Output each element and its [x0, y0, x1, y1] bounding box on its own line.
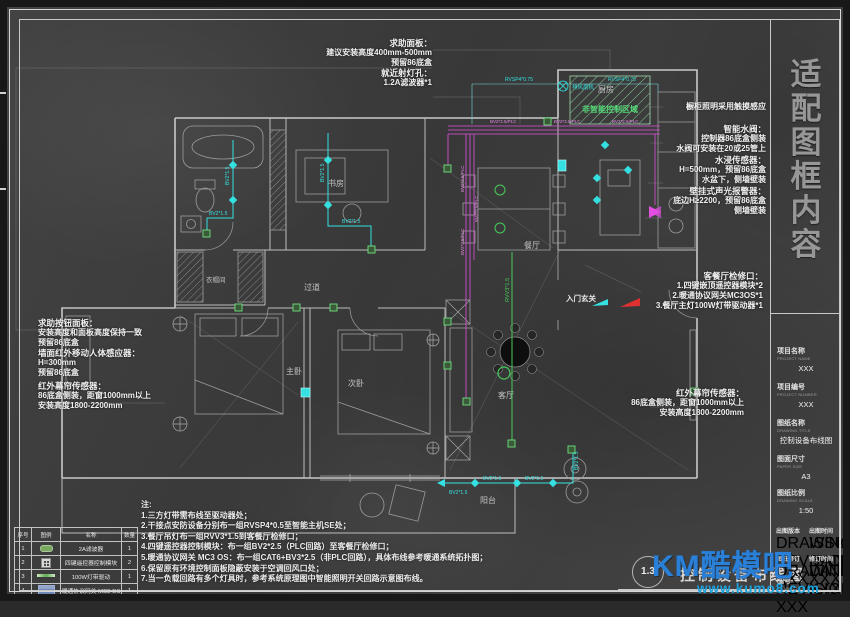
callout-title: 红外幕帘传感器： — [38, 381, 203, 391]
callout-line: 86底盒侧装，距窗1000mm以上 — [574, 398, 744, 408]
legend-no: 4 — [15, 584, 32, 598]
legend-header-row: 序号 图例 名称 数量 — [15, 528, 138, 542]
tb-sublabel: DRAWING NO. — [777, 586, 835, 591]
legend-qty: 1 — [122, 570, 138, 584]
callout-line: 水盆下，侧墙壁装 — [606, 175, 766, 185]
notes-block: 注: 1.三方灯带需布线至驱动器处； 2.干接点安防设备分别布一组RVSP4*0… — [141, 500, 487, 585]
callout-line: 预留86底盒 — [38, 368, 203, 378]
tb-label: 图纸名称 — [777, 420, 835, 428]
legend-icon-cell — [32, 556, 61, 570]
note-item: 3.餐厅吊灯布一组RVV3*1.5到客餐厅检修口； — [141, 532, 487, 543]
legend-row: 3 100W灯带驱动 1 — [15, 570, 138, 584]
tb-sublabel: PAPER SIZE — [777, 464, 835, 469]
callout-line: 安装高度1800-2200mm — [38, 401, 203, 411]
callout-line: 86底盒侧装，距窗1000mm以上 — [38, 391, 203, 401]
room-labels: 厨房 餐厅 书房 过道 衣帽间 主卧 次卧 客厅 阳台 — [206, 84, 614, 505]
wire-label: BV2*1.5 — [342, 219, 361, 225]
room-label-study: 书房 — [328, 178, 344, 188]
legend-name: 暖通协议网关 MC3 OS — [61, 584, 122, 598]
room-label-second: 次卧 — [348, 378, 364, 388]
legend-row: 2 四键遥控器控制模块 2 — [15, 556, 138, 570]
tb-label: 修订时间 — [809, 554, 841, 563]
tb-label: 项目编号 — [777, 384, 835, 392]
vertical-sheet-title: 适 配 图 框 内 容 — [771, 58, 841, 262]
tb-project-name: 项目名称 PROJECT NAME XXX — [777, 348, 835, 373]
tb-label: 出图版本 — [776, 526, 808, 535]
callout-line: H=300mm — [38, 358, 203, 368]
callout-title: 求助面板： — [240, 38, 432, 48]
callout-flood-sensor: 水浸传感器： H=500mm，预留86底盒 水盆下，侧墙壁装 — [606, 155, 766, 185]
tb-label: 项目名称 — [777, 348, 835, 356]
tb-value: 1:50 — [777, 507, 835, 515]
note-item: 6.保留原有环境控制面板隐蔽安装于空调回风口处； — [141, 564, 487, 575]
wardrobe-right — [238, 252, 263, 302]
note-item: 1.三方灯带需布线至驱动器处； — [141, 511, 487, 522]
legend-name: 四键遥控器控制模块 — [61, 556, 122, 570]
tb-sublabel: PROJECT NAME — [777, 356, 835, 361]
legend-name: 100W灯带驱动 — [61, 570, 122, 584]
wire-label: BV2*2.5/PLC — [490, 119, 517, 124]
callout-alarm: 壁挂式声光报警器： 底边H≥2200，预留86底盒 侧墙壁装 — [596, 186, 766, 216]
vchar: 适 — [771, 58, 841, 92]
tb-drawing-title: 图纸名称 DRAWING TITLE 控制设备布线图 — [777, 420, 835, 445]
callout-title: 壁挂式声光报警器： — [596, 186, 766, 196]
callout-line: 预留86底盒 — [240, 58, 432, 68]
note-item: 4.四键遥控器控制模块：布一组BV2*2.5（PLC回路）至客餐厅检修口； — [141, 542, 487, 553]
legend-qty: 1 — [122, 584, 138, 598]
wire-label: BV2*1.5 — [209, 211, 228, 217]
tb-sublabel: DRAWING TITLE — [777, 428, 835, 433]
note-item: 2.干接点安防设备分别布一组RVSP4*0.5至智能主机SE处； — [141, 521, 487, 532]
title-strip: 适 配 图 框 内 容 项目名称 PROJECT NAME XXX 项目编号 P… — [770, 20, 841, 590]
wire-label: BV2*1.5 — [449, 490, 468, 496]
vchar: 图 — [771, 126, 841, 160]
note-item: 5.暖通协议网关 MC3 OS：布一组CAT6+BV3*2.5（非PLC回路），… — [141, 553, 487, 564]
callout-inspection-port: 客餐厅检修口： 1.四键嵌顶遥控器模块*2 2.暖通协议网关MC3OS*1 3.… — [583, 271, 763, 311]
wire-label: BV2*2.5/PLC — [554, 119, 581, 124]
callout-title: 红外幕帘传感器： — [574, 388, 744, 398]
edge-tick — [0, 92, 6, 94]
callout-ir-curtain-left: 红外幕帘传感器： 86底盒侧装，距窗1000mm以上 安装高度1800-2200… — [38, 381, 203, 411]
callout-title: 智能水阀： — [606, 124, 766, 134]
callout-line: 1.四键嵌顶遥控器模块*2 — [583, 281, 763, 291]
callout-title: 求助按钮面板： — [38, 318, 203, 328]
tb-value: XXX — [777, 401, 835, 409]
wire-label: BV2*1.5 — [320, 163, 326, 182]
legend-no: 3 — [15, 570, 32, 584]
room-label-hall: 过道 — [304, 282, 320, 292]
room-label-cloak: 衣帽间 — [206, 275, 226, 284]
tb-value: 1.3 — [777, 595, 835, 603]
tb-label: 图纸比例 — [777, 490, 835, 498]
tb-value: 控制设备布线图 — [777, 437, 835, 445]
rvv-wiring — [495, 185, 512, 440]
tb-label: 图号 — [777, 578, 835, 586]
callout-title: 就近射灯孔： — [240, 68, 432, 78]
exhaust-fan-icon — [558, 81, 568, 91]
tb-label: 图面尺寸 — [777, 456, 835, 464]
callout-line: 建议安装高度400mm-500mm — [240, 48, 432, 58]
edge-tick — [0, 188, 6, 190]
callout-line: 安装高度和面板高度保持一致 — [38, 328, 203, 338]
legend-row: 4 暖通协议网关 MC3 OS 1 — [15, 584, 138, 598]
hvac-gateway-icon — [38, 585, 55, 596]
legend-qty: 2 — [122, 556, 138, 570]
callout-line: 安装高度1800-2200mm — [574, 408, 744, 418]
callout-line: H=500mm，预留86底盒 — [606, 165, 766, 175]
exhaust-fan-label: 排风扇机 — [572, 83, 595, 91]
drawing-sheet: BV2*1.5 BV2*1.5 BV2*1.5 BV2*1.5 BV2*1.5 … — [0, 0, 850, 601]
vchar: 框 — [771, 160, 841, 194]
non-smart-zone — [570, 76, 650, 124]
legend-icon-cell — [32, 542, 61, 556]
callout-line: 1.2A滤波器*1 — [240, 78, 432, 88]
wire-label: BV2*1.5 — [574, 451, 580, 470]
tb-value: A3 — [777, 473, 835, 481]
callout-title: 水浸传感器： — [606, 155, 766, 165]
callout-help-panel: 求助面板： 建议安装高度400mm-500mm 预留86底盒 就近射灯孔： 1.… — [240, 38, 432, 88]
keypad-module-icon — [41, 558, 51, 568]
wire-label: BV2*2.5/PLC — [460, 228, 465, 255]
page-number-circle: 1.3 — [632, 556, 664, 588]
legend-header: 图例 — [32, 528, 61, 542]
legend-name: 2A滤波器 — [61, 542, 122, 556]
callout-title: 客餐厅检修口： — [583, 271, 763, 281]
callout-line: 2.暖通协议网关MC3OS*1 — [583, 291, 763, 301]
vchar: 容 — [771, 228, 841, 262]
notes-title: 注: — [141, 500, 487, 511]
wire-label: BV2*1.5 — [525, 476, 544, 482]
round-table-set — [487, 324, 544, 381]
wire-label: RVSP4*0.75 — [608, 77, 636, 83]
legend-row: 1 2A滤波器 1 — [15, 542, 138, 556]
wire-label-rvv: RVV3*1.5 — [505, 278, 511, 302]
footer-underline — [618, 589, 770, 590]
led-strip-driver-icon — [37, 574, 55, 577]
callout-line: 3.餐厅主灯100W灯带驱动器*1 — [583, 301, 763, 311]
tb-paper-size: 图面尺寸 PAPER SIZE A3 — [777, 456, 835, 481]
tb-sublabel: PROJECT NUMBER — [777, 392, 835, 397]
duct-shaft — [270, 130, 286, 230]
filter-capsule-icon — [40, 545, 53, 552]
room-label-master: 主卧 — [286, 366, 302, 376]
callout-line: 水阀可安装在20或25管上 — [606, 144, 766, 154]
tb-sublabel: DRAWING SCALE — [777, 498, 835, 503]
legend-qty: 1 — [122, 542, 138, 556]
callout-help-button: 求助按钮面板： 安装高度和面板高度保持一致 预留86底盒 墙面红外移动人体感应器… — [38, 318, 203, 378]
strip-divider — [771, 313, 841, 314]
wire-label: BV2*1.5 — [483, 476, 502, 482]
tb-scale: 图纸比例 DRAWING SCALE 1:50 — [777, 490, 835, 515]
legend-icon-cell — [32, 570, 61, 584]
wire-label: BV2*1.5 — [225, 166, 231, 185]
legend-no: 2 — [15, 556, 32, 570]
callout-line: 预留86底盒 — [38, 338, 203, 348]
vchar: 内 — [771, 194, 841, 228]
tb-label: 出图时间 — [809, 526, 841, 535]
tb-project-number: 项目编号 PROJECT NUMBER XXX — [777, 384, 835, 409]
legend-table: 序号 图例 名称 数量 1 2A滤波器 1 2 四键遥控器控制模块 2 3 10… — [14, 527, 138, 598]
callout-line: 控制器86底盒侧装 — [606, 134, 766, 144]
room-label-kitchen: 厨房 — [598, 84, 614, 94]
callout-line: 橱柜照明采用触摸感应 — [606, 102, 766, 112]
wardrobe-left — [177, 252, 203, 302]
room-label-living: 客厅 — [498, 390, 514, 400]
living-furniture — [446, 300, 696, 460]
wire-label: RVSP4*0.75 — [505, 77, 533, 83]
callout-smart-valve: 智能水阀： 控制器86底盒侧装 水阀可安装在20或25管上 — [606, 124, 766, 154]
legend-icon-cell — [32, 584, 61, 598]
callout-cabinet-light: 橱柜照明采用触摸感应 — [606, 102, 766, 112]
callout-title: 墙面红外移动人体感应器： — [38, 348, 203, 358]
tb-drawing-no: 图号 DRAWING NO. 1.3 — [777, 578, 835, 603]
legend-no: 1 — [15, 542, 32, 556]
tb-value: XXX — [777, 365, 835, 373]
note-item: 7.当一负载回路有多个灯具时，参考系统原理图中智能照明开关回路示意图布线。 — [141, 574, 487, 585]
wire-diamonds — [229, 141, 632, 487]
legend-header: 序号 — [15, 528, 32, 542]
vchar: 配 — [771, 92, 841, 126]
wire-label: BV2*2.5/PLC — [460, 165, 465, 192]
legend-header: 名称 — [61, 528, 122, 542]
room-label-dining: 餐厅 — [524, 241, 540, 250]
legend-header: 数量 — [122, 528, 138, 542]
callout-ir-curtain-right: 红外幕帘传感器： 86底盒侧装，距窗1000mm以上 安装高度1800-2200… — [574, 388, 744, 418]
callout-line: 侧墙壁装 — [596, 206, 766, 216]
wire-label: BV2*2.5/PLC — [474, 195, 479, 222]
tb-label: 图纸修订 — [776, 554, 808, 563]
callout-line: 底边H≥2200，预留86底盒 — [596, 196, 766, 206]
